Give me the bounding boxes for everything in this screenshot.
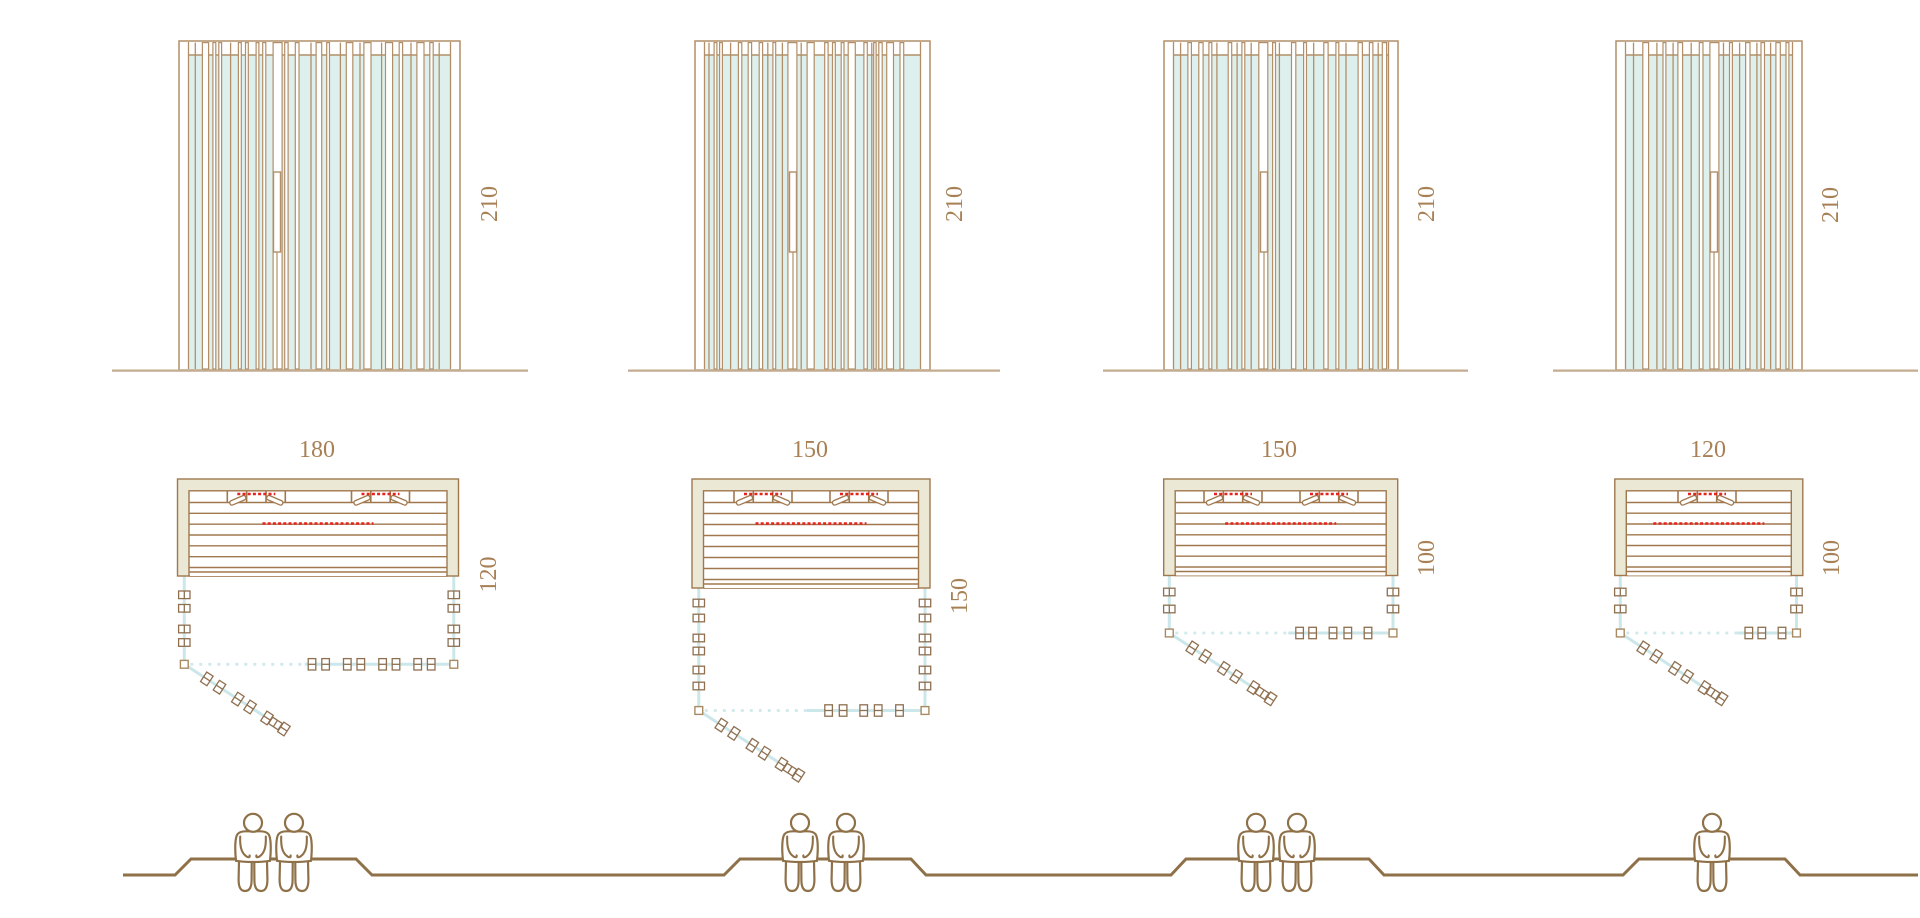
- svg-text:180: 180: [299, 437, 335, 463]
- svg-text:150: 150: [1261, 437, 1297, 463]
- svg-text:210: 210: [477, 186, 503, 222]
- svg-text:210: 210: [1818, 187, 1844, 223]
- svg-text:210: 210: [942, 186, 968, 222]
- svg-text:100: 100: [1819, 540, 1845, 576]
- svg-text:120: 120: [1690, 437, 1726, 463]
- svg-text:120: 120: [476, 557, 502, 593]
- svg-text:100: 100: [1414, 540, 1440, 576]
- svg-text:210: 210: [1414, 186, 1440, 222]
- svg-text:150: 150: [792, 437, 828, 463]
- svg-text:150: 150: [947, 578, 973, 614]
